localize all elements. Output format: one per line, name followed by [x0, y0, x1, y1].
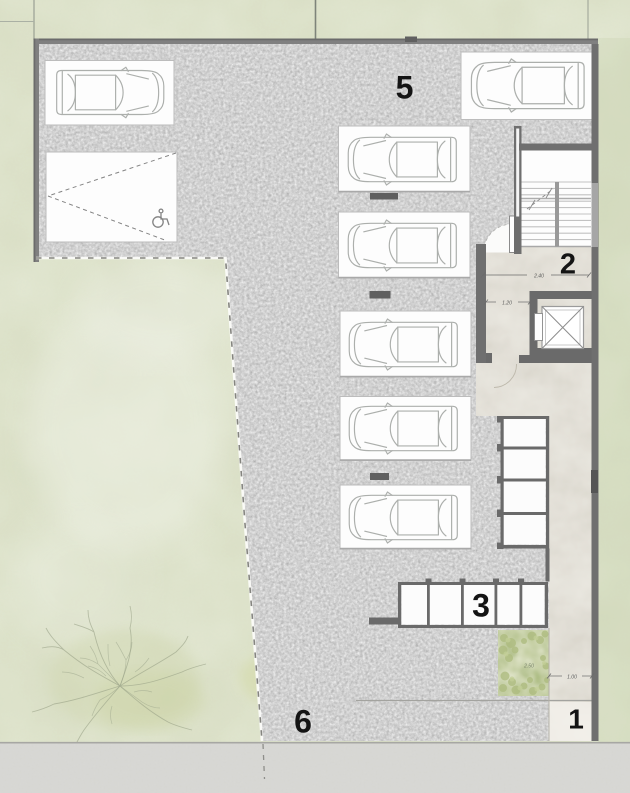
svg-text:1: 1: [568, 704, 584, 735]
svg-text:2.50: 2.50: [523, 664, 534, 670]
svg-text:5: 5: [396, 70, 414, 106]
svg-text:3: 3: [472, 588, 490, 624]
svg-text:6: 6: [294, 704, 312, 740]
svg-text:2.40: 2.40: [533, 274, 544, 280]
svg-text:2: 2: [560, 249, 576, 281]
svg-text:1.20: 1.20: [502, 301, 512, 307]
svg-text:1.00: 1.00: [567, 675, 577, 681]
